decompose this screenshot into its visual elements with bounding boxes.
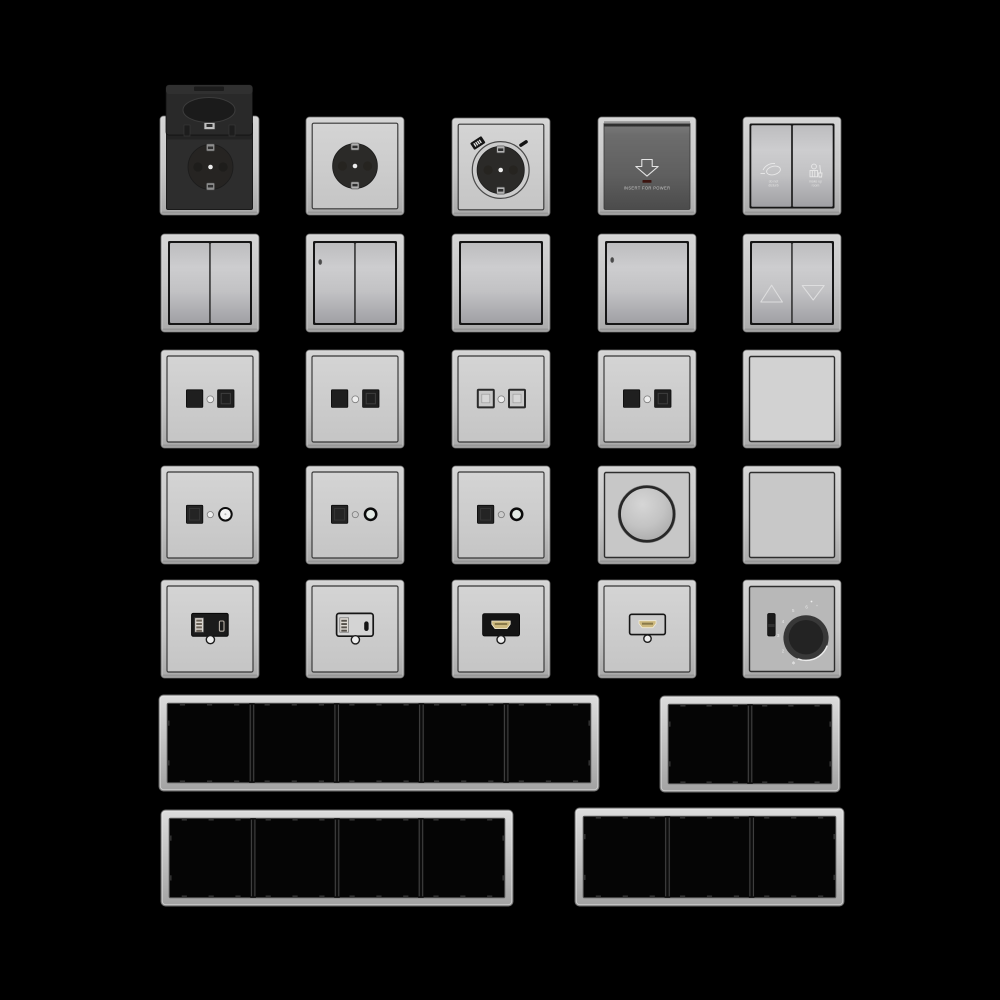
svg-text:room: room (812, 183, 820, 187)
svg-text:✱: ✱ (792, 661, 796, 666)
svg-text:disturb: disturb (768, 183, 778, 187)
svg-text:INSERT FOR POWER: INSERT FOR POWER (624, 186, 671, 191)
